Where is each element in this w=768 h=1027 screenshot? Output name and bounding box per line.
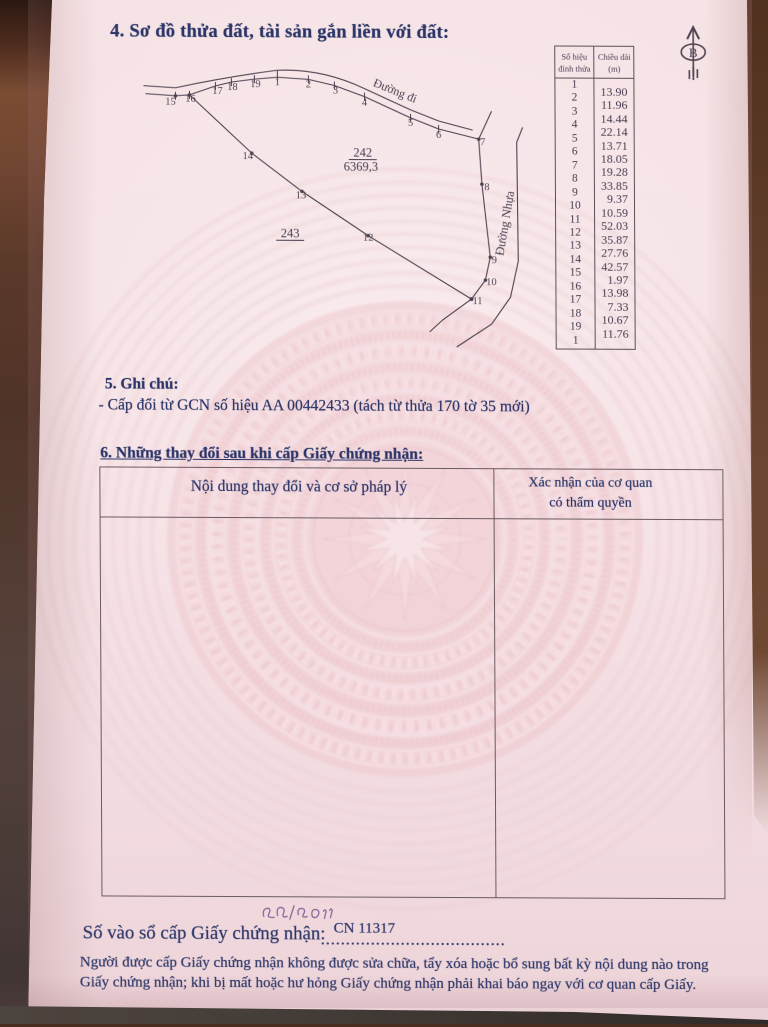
svg-text:243: 243 xyxy=(281,226,300,240)
svg-text:1: 1 xyxy=(275,77,280,88)
svg-text:5: 5 xyxy=(408,118,413,129)
svg-text:Đường đi: Đường đi xyxy=(371,75,419,106)
svg-text:Đường Nhựa: Đường Nhựa xyxy=(492,189,517,257)
svg-text:15: 15 xyxy=(165,97,176,108)
svg-text:8: 8 xyxy=(484,182,489,193)
svg-text:2: 2 xyxy=(306,79,311,90)
svg-text:9: 9 xyxy=(492,255,497,266)
svg-text:13: 13 xyxy=(296,190,307,201)
svg-text:6369,3: 6369,3 xyxy=(344,160,378,174)
svg-text:3: 3 xyxy=(333,85,338,96)
svg-text:B: B xyxy=(689,45,698,60)
svg-text:18: 18 xyxy=(227,82,238,93)
svg-text:16: 16 xyxy=(185,94,196,105)
svg-text:12: 12 xyxy=(363,233,374,244)
svg-text:10: 10 xyxy=(486,277,497,288)
svg-text:4: 4 xyxy=(362,98,368,109)
svg-text:11: 11 xyxy=(472,296,482,307)
svg-text:19: 19 xyxy=(250,79,261,90)
svg-text:14: 14 xyxy=(243,151,254,162)
svg-text:17: 17 xyxy=(212,86,223,97)
svg-text:6: 6 xyxy=(436,130,441,141)
svg-text:242: 242 xyxy=(353,146,372,160)
svg-text:7: 7 xyxy=(480,137,485,148)
